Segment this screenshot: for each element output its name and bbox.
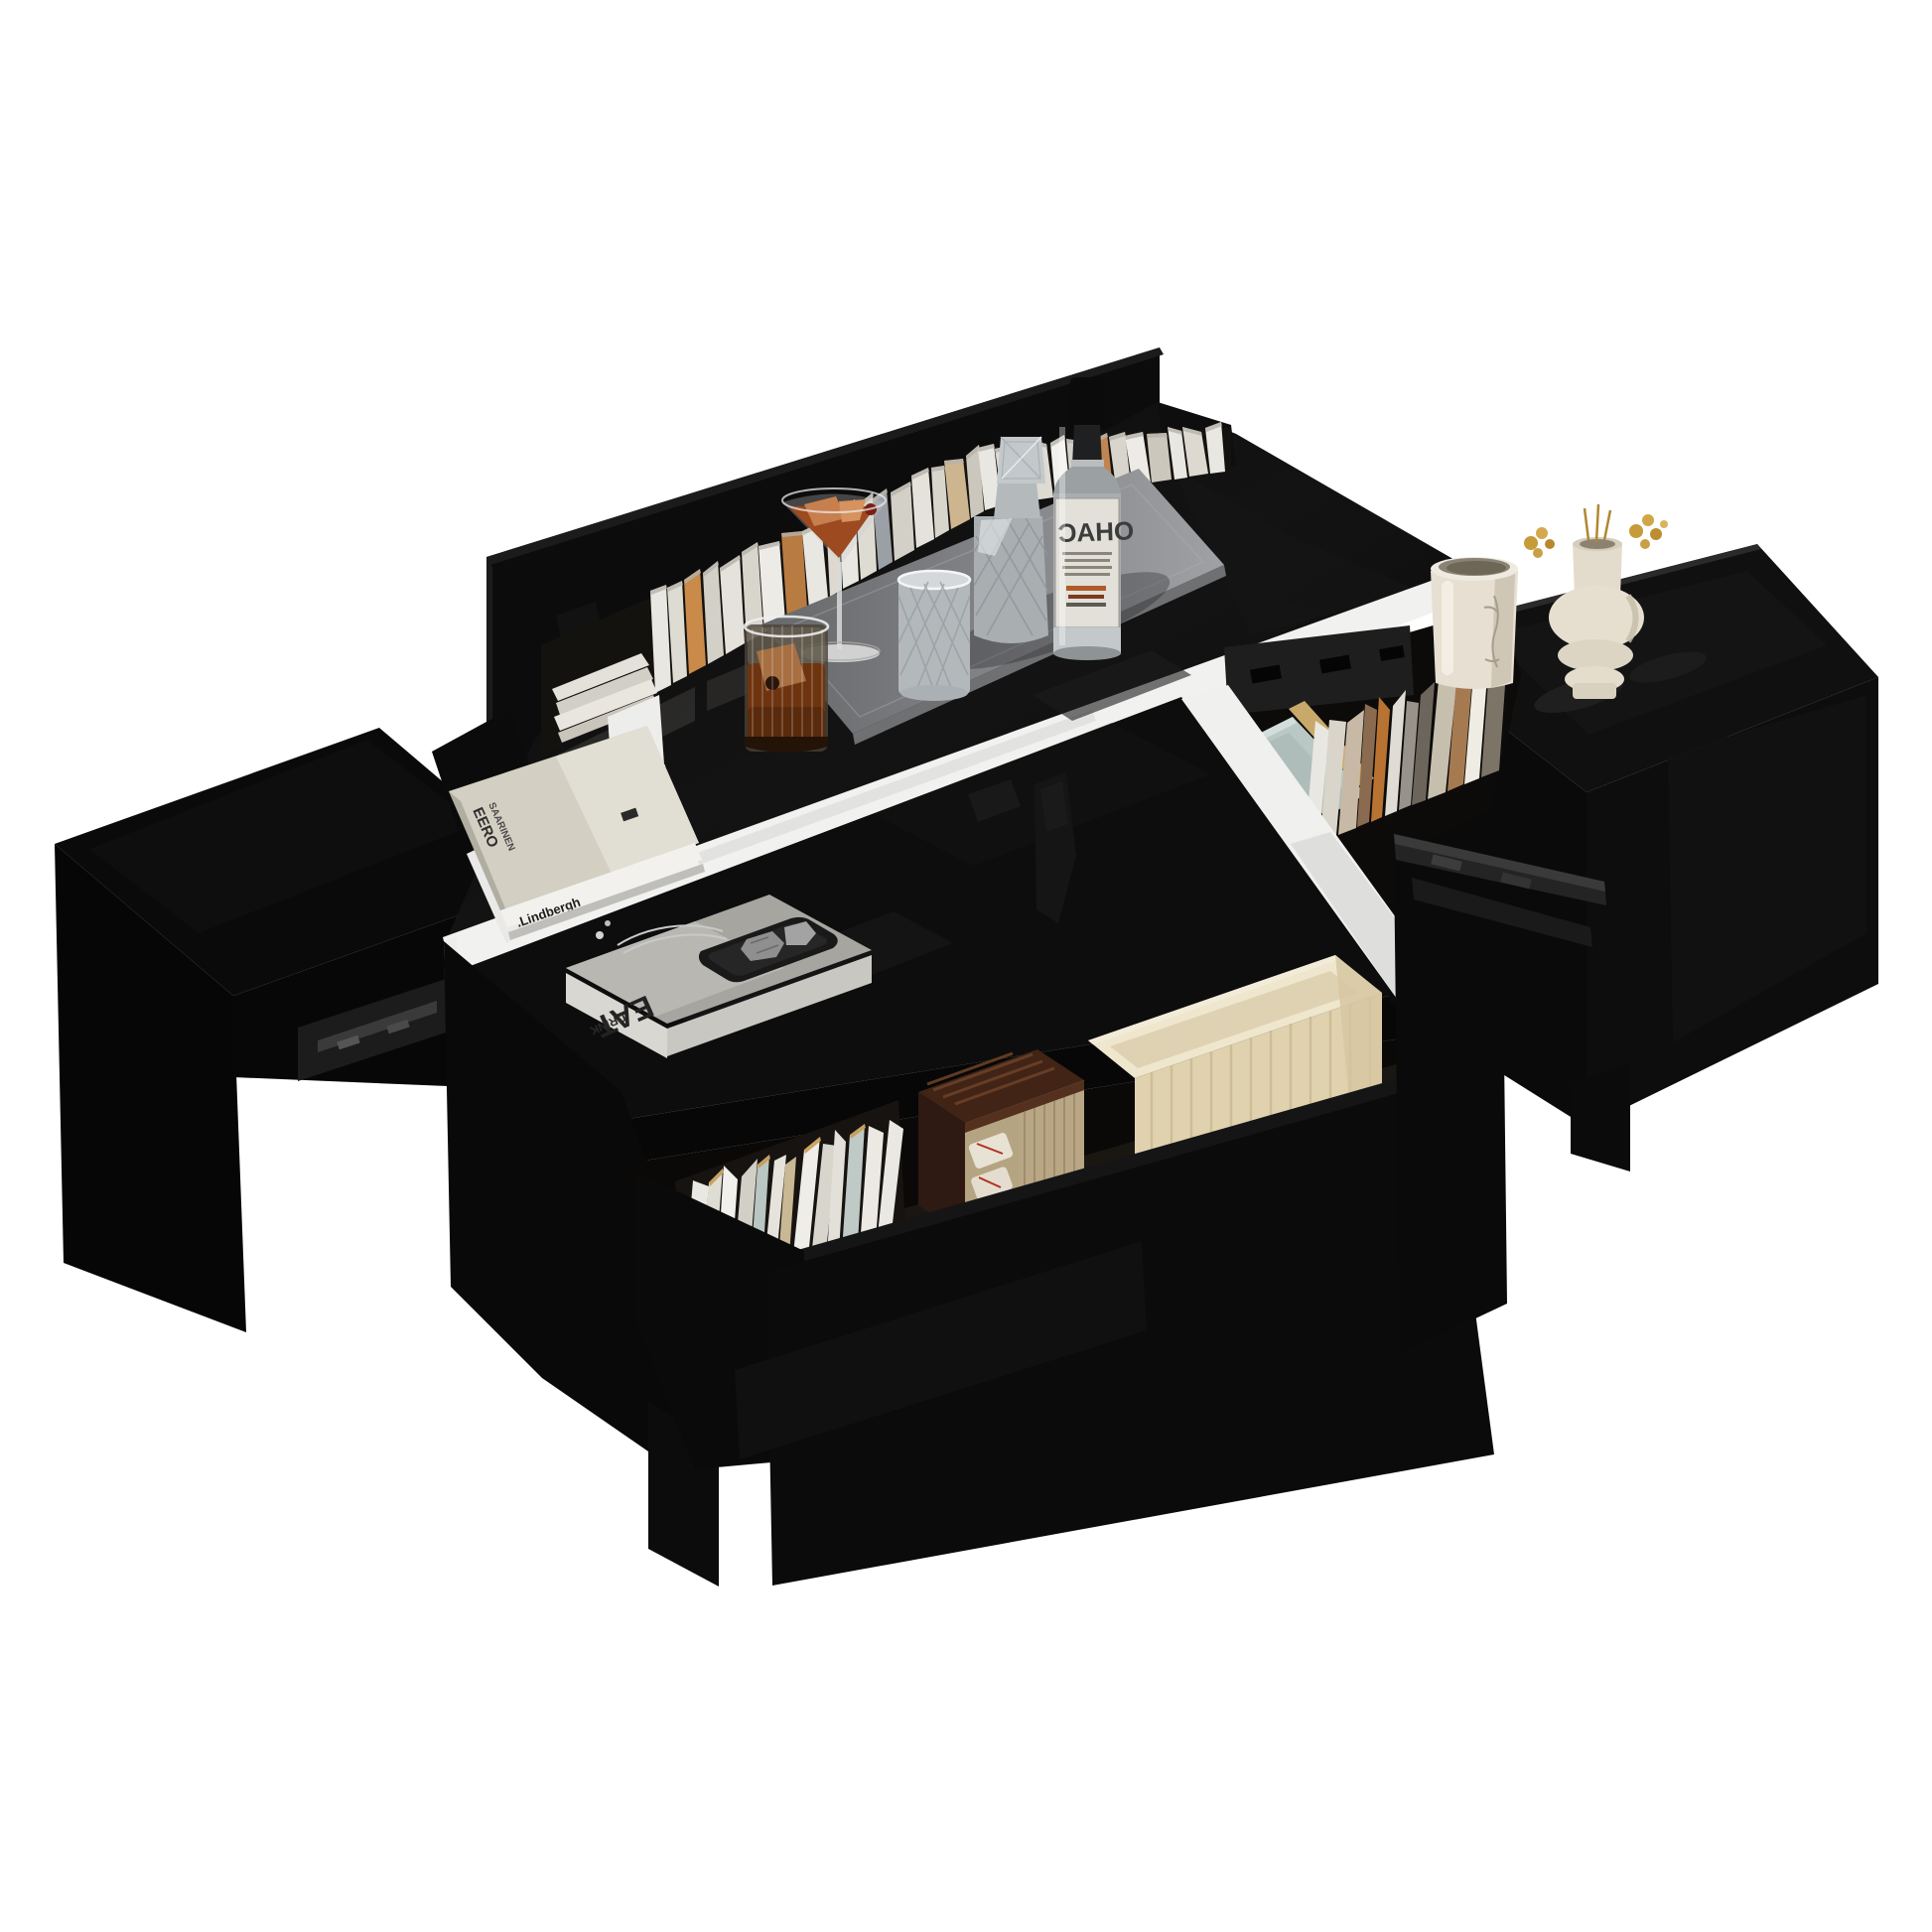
svg-text:ƆAHO: ƆAHO <box>1057 515 1135 548</box>
